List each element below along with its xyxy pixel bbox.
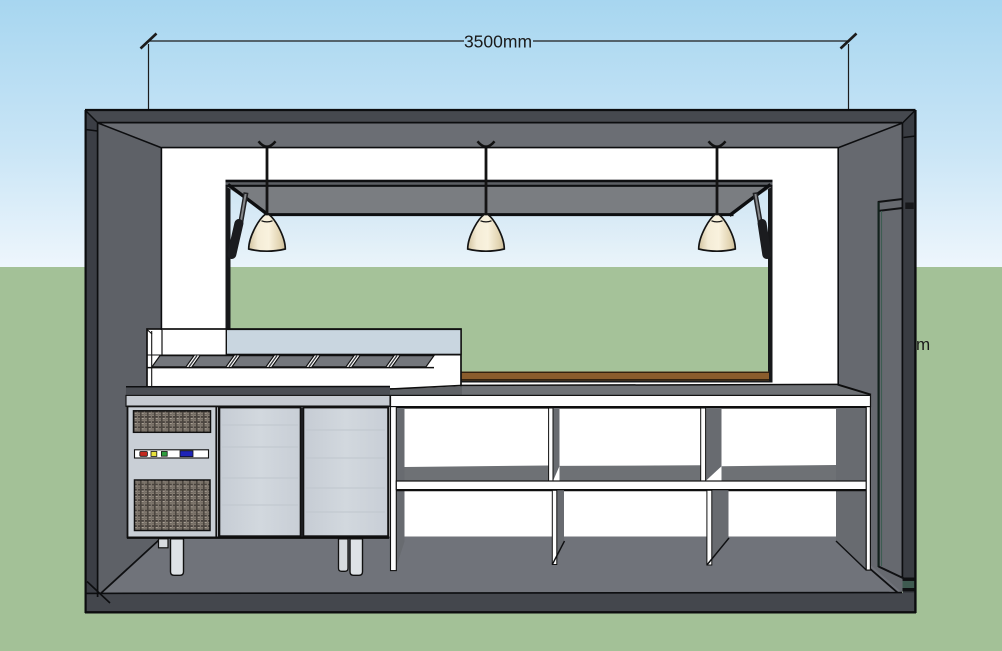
svg-text:m: m bbox=[916, 335, 930, 354]
svg-text:3500mm: 3500mm bbox=[464, 32, 532, 52]
